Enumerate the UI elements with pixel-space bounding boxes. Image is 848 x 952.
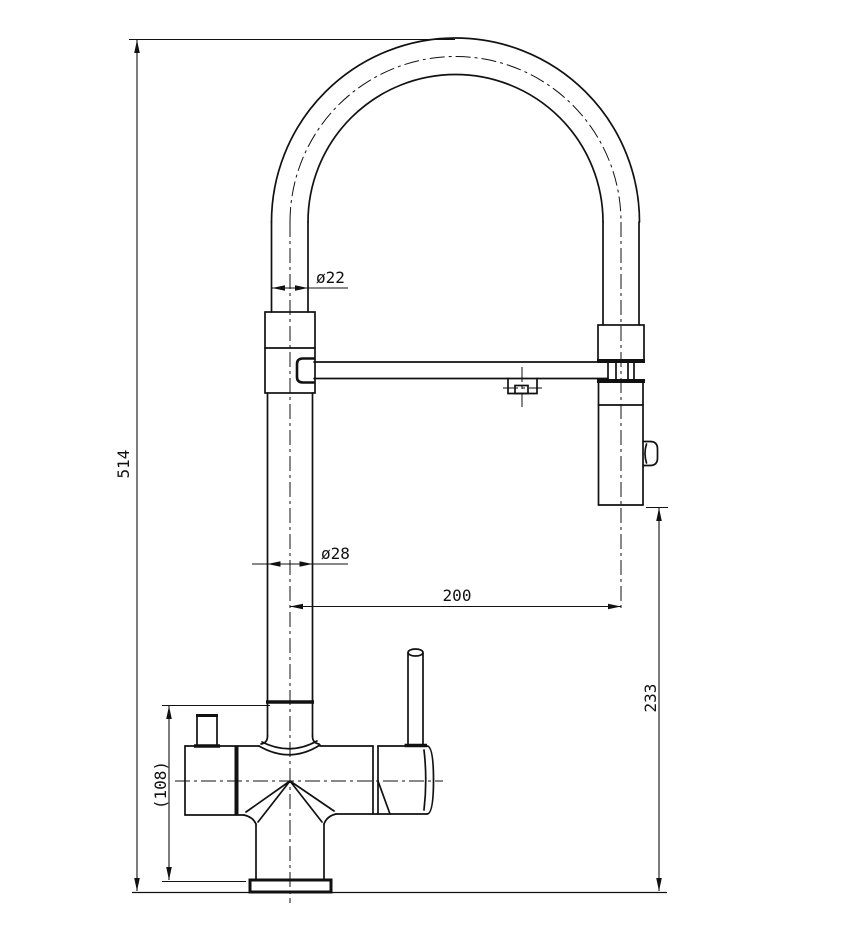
spray-head-button-face <box>645 444 647 463</box>
dimension-108 <box>162 706 270 882</box>
left-handle-knob <box>197 716 217 746</box>
support-bar-bracket <box>297 359 314 383</box>
faucet-body <box>185 746 378 824</box>
dimension-514 <box>129 40 455 892</box>
spout-centerline-arc <box>290 57 621 223</box>
dimension-arrowheads <box>134 40 662 891</box>
faucet-outline <box>185 38 658 892</box>
faucet-technical-drawing: 514 (108) 233 ø22 ø28 200 <box>0 0 848 952</box>
dimension-labels: 514 (108) 233 ø22 ø28 200 <box>114 268 660 809</box>
hose-diameter-label: ø22 <box>316 268 345 287</box>
technical-drawing-canvas: 514 (108) 233 ø22 ø28 200 <box>0 0 848 952</box>
dimension-lines <box>129 40 668 893</box>
right-lever-handle <box>408 649 423 744</box>
right-valve-body <box>373 746 434 814</box>
support-bar <box>297 359 608 383</box>
spout-arc <box>272 38 640 222</box>
spray-clearance-label: 233 <box>641 684 660 713</box>
total-height-label: 514 <box>114 450 133 479</box>
spray-head <box>599 383 658 505</box>
centerlines <box>175 57 621 904</box>
spout-reach-label: 200 <box>443 586 472 605</box>
body-height-label: (108) <box>151 761 170 809</box>
riser-diameter-label: ø28 <box>321 544 350 563</box>
